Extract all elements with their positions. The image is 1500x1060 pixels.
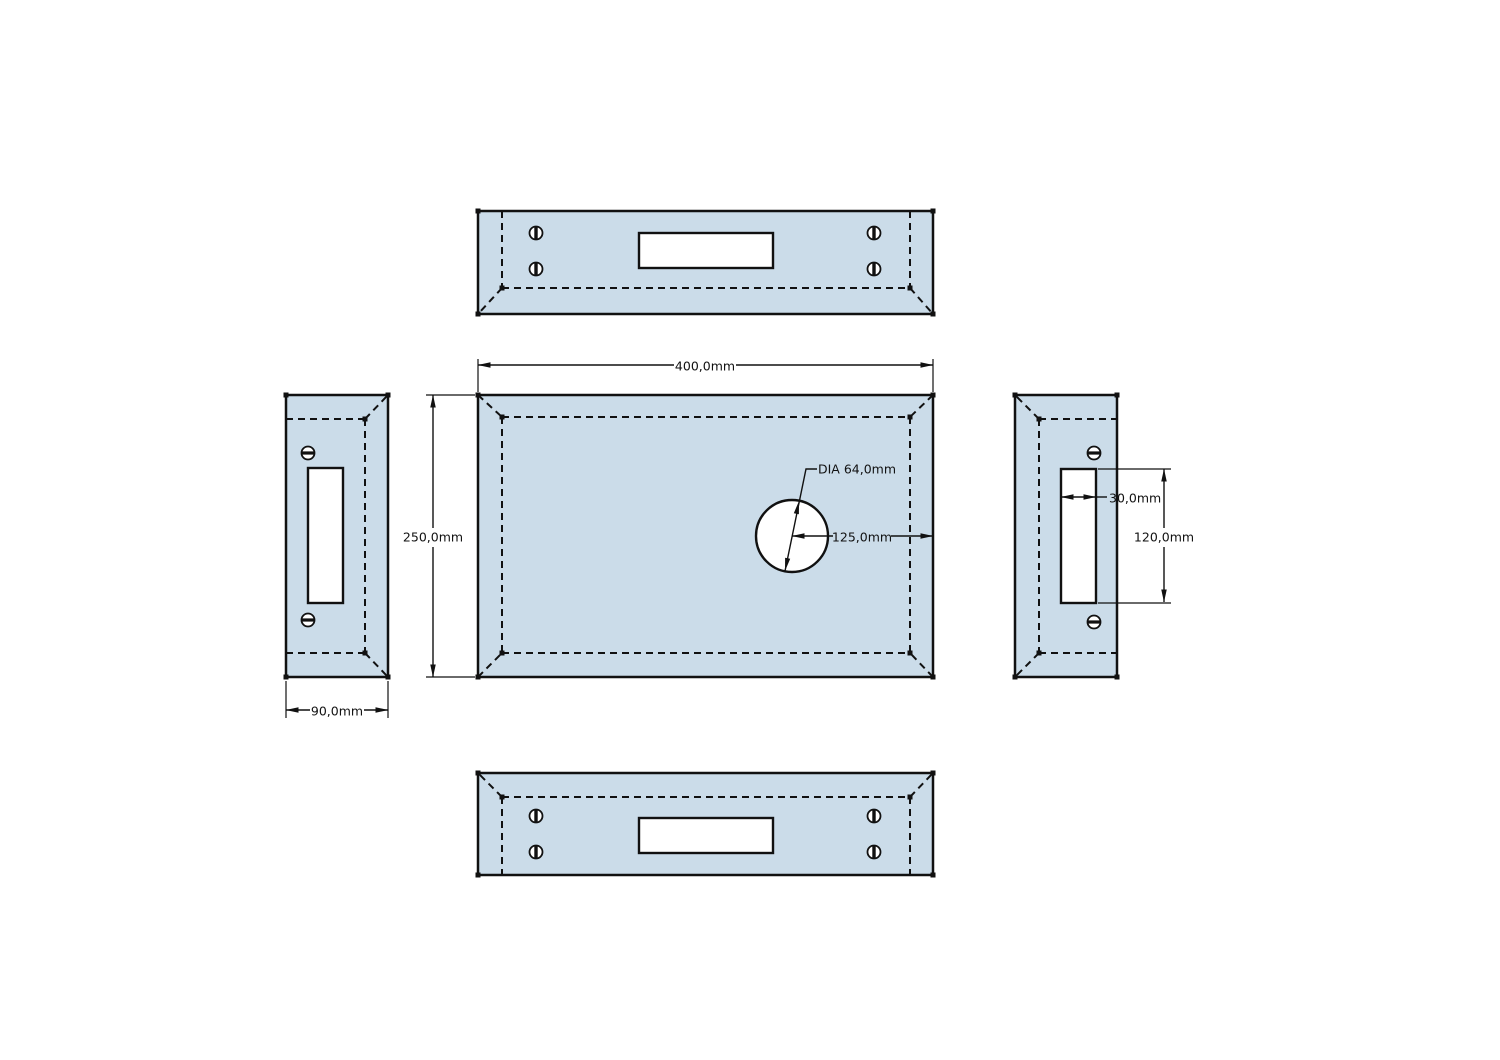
dimension-hole-offset-label: 125,0mm [832,530,892,545]
cad-drawing: 400,0mm 250,0mm 90,0mm DIA 64,0mm [0,0,1500,1060]
screw-hole [868,810,881,823]
screw-hole [868,263,881,276]
drawing-page: 400,0mm 250,0mm 90,0mm DIA 64,0mm [0,0,1500,1060]
right-side-view [1015,395,1117,677]
dimension-slot-height-label: 120,0mm [1134,530,1194,545]
screw-hole [1088,447,1101,460]
screw-hole [530,263,543,276]
screw-hole [868,227,881,240]
dimension-hole-diameter-label: DIA 64,0mm [818,462,896,477]
screw-hole [530,810,543,823]
screw-hole [302,447,315,460]
bottom-view-slot-cutout [639,818,773,853]
dimension-side-depth-label: 90,0mm [311,704,363,719]
dimension-slot-width-label: 30,0mm [1109,491,1161,506]
left-view-slot-cutout [308,468,343,603]
dimension-side-depth: 90,0mm [286,681,388,719]
bottom-view [478,773,933,875]
screw-hole [302,614,315,627]
dimension-overall-width-label: 400,0mm [675,359,735,374]
top-view-slot-cutout [639,233,773,268]
screw-hole [530,846,543,859]
dimension-overall-width: 400,0mm [478,359,933,393]
dimension-overall-height: 250,0mm [403,395,475,677]
top-view [478,211,933,314]
screw-hole [868,846,881,859]
dimension-overall-height-label: 250,0mm [403,530,463,545]
screw-hole [1088,616,1101,629]
left-side-view [286,395,388,677]
screw-hole [530,227,543,240]
right-view-slot-cutout [1061,469,1096,603]
